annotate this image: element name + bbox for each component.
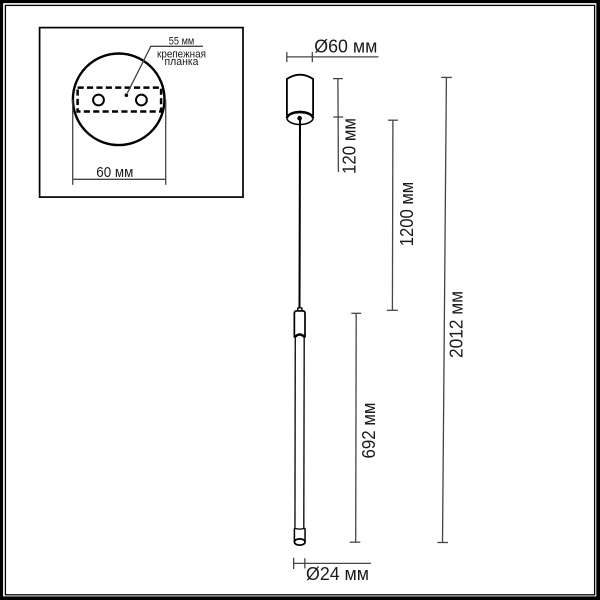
svg-text:692 мм: 692 мм xyxy=(358,403,379,459)
svg-text:Ø60 мм: Ø60 мм xyxy=(314,35,377,56)
svg-text:планка: планка xyxy=(165,56,199,68)
svg-text:2012 мм: 2012 мм xyxy=(445,291,466,358)
svg-text:60 мм: 60 мм xyxy=(96,165,133,181)
svg-text:120 мм: 120 мм xyxy=(339,118,360,174)
svg-text:Ø24 мм: Ø24 мм xyxy=(306,563,369,584)
svg-text:1200 мм: 1200 мм xyxy=(396,182,417,247)
svg-text:55 мм: 55 мм xyxy=(169,35,195,47)
